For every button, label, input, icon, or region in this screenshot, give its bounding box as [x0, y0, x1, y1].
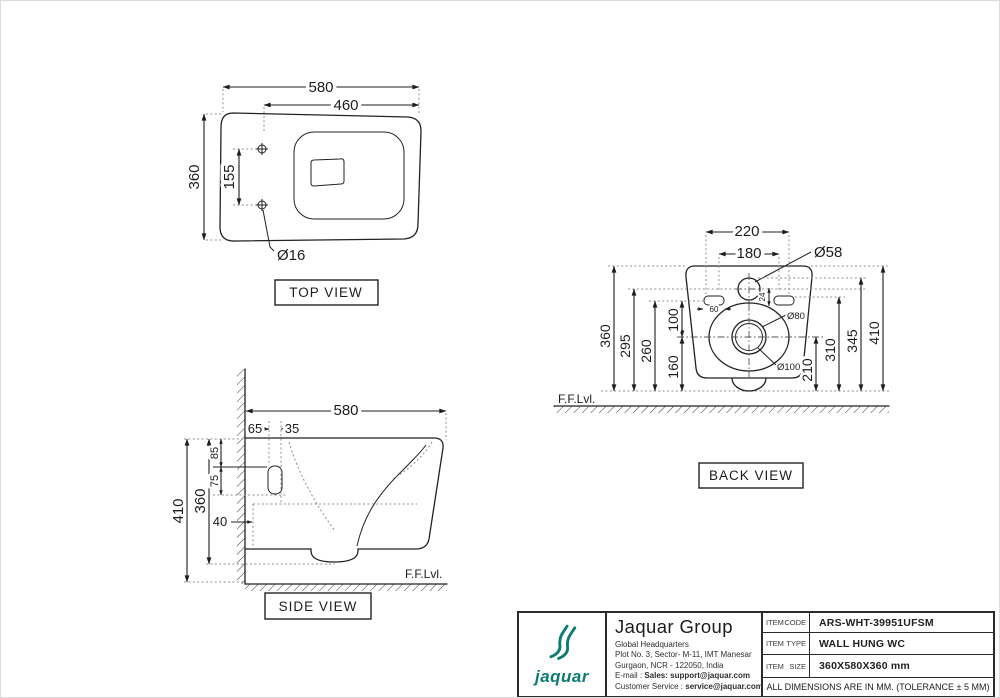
cs-value: service@jaquar.com: [685, 682, 763, 691]
customer-service-line: Customer Service : service@jaquar.com: [615, 682, 755, 692]
title-block: jaquar Jaquar Group Global Headquarters …: [517, 611, 995, 698]
back-dim-345: 345: [844, 329, 860, 353]
top-view-flush-opening: [311, 159, 344, 186]
back-dim-410: 410: [866, 321, 882, 345]
top-dim-155: 155: [221, 164, 238, 189]
top-dim-dia16: Ø16: [277, 247, 305, 264]
jaquar-wordmark: jaquar: [535, 667, 589, 687]
item-code-value: ARS-WHT-39951UFSM: [810, 613, 993, 632]
side-ffl-label: F.F.Lvl.: [405, 567, 442, 581]
top-dim-360: 360: [186, 164, 203, 189]
address-line-3: Gurgaon, NCR - 122050, India: [615, 661, 755, 671]
side-view-label: SIDE VIEW: [279, 599, 358, 614]
item-code-row: ITEMCODE ARS-WHT-39951UFSM: [763, 613, 993, 633]
back-dim-295: 295: [617, 334, 633, 358]
side-view-drawing: 580 65 35 85 75 410 360 40 F.F.Lvl. SIDE…: [170, 369, 447, 619]
side-dim-360: 360: [192, 488, 209, 513]
item-size-label: ITEMSIZE: [763, 655, 810, 677]
dimensions-note: ALL DIMENSIONS ARE IN MM. (TOLERANCE ± 5…: [763, 678, 993, 696]
jaquar-logo-icon: [545, 623, 579, 665]
item-type-row: ITEMTYPE WALL HUNG WC: [763, 633, 993, 655]
back-dim-220: 220: [734, 223, 759, 240]
side-ground-hatch: [245, 584, 447, 591]
back-ground-hatch: [554, 406, 889, 413]
back-bottom-bump: [732, 378, 766, 391]
back-dim-180: 180: [736, 245, 761, 262]
item-size-value: 360X580X360 mm: [810, 655, 993, 677]
side-bowl-curve: [357, 445, 426, 546]
email-label: E-mail :: [615, 671, 644, 680]
dia80-leader: [762, 315, 786, 327]
top-dim-580: 580: [308, 79, 333, 96]
side-dim-85: 85: [209, 447, 221, 459]
top-view-fixing-holes: [256, 143, 268, 211]
cs-label: Customer Service :: [615, 682, 685, 691]
item-type-label: ITEMTYPE: [763, 633, 810, 654]
back-dim-310: 310: [822, 338, 838, 362]
hole-dia-leader: [263, 210, 274, 251]
technical-drawing: 580 460 360 155 Ø16 TOP VIEW: [1, 1, 1000, 698]
back-dim-dia100: Ø100: [777, 362, 800, 373]
drawing-sheet: 580 460 360 155 Ø16 TOP VIEW: [0, 0, 1000, 698]
email-line: E-mail : Sales: support@jaquar.com: [615, 671, 755, 681]
back-view-label: BACK VIEW: [709, 468, 793, 483]
back-dim-100: 100: [665, 308, 681, 332]
side-dim-580: 580: [333, 402, 358, 419]
back-dim-dia80: Ø80: [787, 311, 805, 322]
item-table: ITEMCODE ARS-WHT-39951UFSM ITEMTYPE WALL…: [763, 613, 993, 696]
side-dim-35: 35: [285, 421, 299, 436]
top-dim-460: 460: [333, 97, 358, 114]
item-code-label: ITEMCODE: [763, 613, 810, 632]
side-dim-75: 75: [209, 475, 221, 487]
top-view-label: TOP VIEW: [289, 285, 363, 300]
side-fixing-slot: [268, 466, 282, 494]
back-dim-210: 210: [799, 358, 815, 382]
back-left-slot: [704, 296, 724, 305]
back-dim-24: 24: [758, 292, 767, 301]
side-hidden-lines: [213, 421, 432, 548]
side-view-outline: [246, 438, 443, 562]
top-view-drawing: 580 460 360 155 Ø16 TOP VIEW: [186, 79, 421, 305]
side-dim-410: 410: [170, 498, 187, 523]
back-dim-dia58: Ø58: [814, 244, 842, 261]
email-value: Sales: support@jaquar.com: [644, 671, 750, 680]
back-dim-160: 160: [665, 355, 681, 379]
back-dim-360: 360: [597, 324, 613, 348]
brand-cell: jaquar: [519, 613, 607, 696]
company-name: Jaquar Group: [615, 616, 755, 638]
back-view-drawing: 220 180 Ø58 60 24 Ø80 Ø100 360 295 260 1…: [554, 223, 889, 488]
back-dim-60: 60: [710, 305, 719, 314]
company-cell: Jaquar Group Global Headquarters Plot No…: [607, 613, 763, 696]
back-dim-260: 260: [638, 339, 654, 363]
back-right-slot: [774, 296, 794, 305]
side-dim-40: 40: [213, 514, 227, 529]
side-wall-hatch: [237, 369, 245, 584]
address-line-2: Plot No. 3, Sector- M-11, IMT Manesar: [615, 650, 755, 660]
item-type-value: WALL HUNG WC: [810, 633, 993, 654]
item-size-row: ITEMSIZE 360X580X360 mm: [763, 655, 993, 678]
address-line-1: Global Headquarters: [615, 640, 755, 650]
back-ffl-label: F.F.Lvl.: [558, 392, 595, 406]
dia100-leader: [758, 348, 776, 365]
side-dim-65: 65: [248, 421, 262, 436]
